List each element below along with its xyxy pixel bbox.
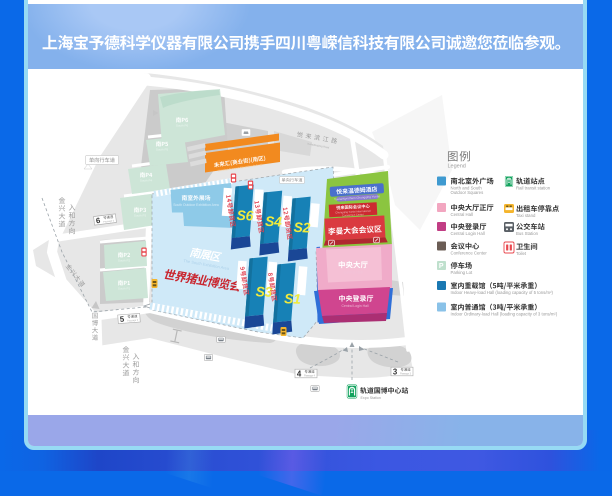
svg-text:Toilet: Toilet	[516, 251, 527, 256]
svg-text:Expo Station: Expo Station	[361, 396, 381, 400]
svg-text:S2: S2	[293, 220, 310, 236]
svg-text:South P2: South P2	[118, 259, 131, 263]
svg-text:Parking Lot: Parking Lot	[451, 270, 474, 275]
svg-text:Central Login Hall: Central Login Hall	[451, 231, 485, 236]
svg-text:Taxi stand: Taxi stand	[516, 213, 536, 218]
svg-text:Outdoor Squares: Outdoor Squares	[451, 190, 484, 195]
svg-text:Indoor Ordinary-load Hall (loa: Indoor Ordinary-load Hall (loading capac…	[451, 311, 558, 316]
svg-text:Conference Center: Conference Center	[451, 250, 488, 255]
svg-text:South Outdoor Exhibition Area: South Outdoor Exhibition Area	[173, 203, 219, 207]
svg-text:Legend: Legend	[448, 164, 466, 170]
svg-text:4: 4	[297, 369, 302, 378]
svg-text:P: P	[439, 263, 444, 270]
svg-text:South P6: South P6	[176, 124, 189, 128]
svg-text:South P1: South P1	[118, 287, 131, 291]
svg-text:S4: S4	[265, 214, 282, 230]
svg-text:3: 3	[393, 367, 398, 376]
svg-text:Central Hall: Central Hall	[451, 212, 473, 217]
svg-text:Bus Station: Bus Station	[516, 231, 539, 236]
svg-text:Passage 4: Passage 4	[304, 375, 316, 377]
svg-text:Rail transit station: Rail transit station	[516, 185, 551, 190]
svg-text:Central Login Hall: Central Login Hall	[342, 304, 369, 308]
svg-text:South P3: South P3	[134, 214, 147, 218]
svg-text:South P5: South P5	[156, 148, 169, 152]
svg-text:Passage 3: Passage 3	[400, 373, 412, 375]
svg-text:South P4: South P4	[140, 179, 153, 183]
svg-text:S1: S1	[284, 291, 301, 307]
svg-text:S6: S6	[236, 208, 253, 224]
svg-text:Central Hall: Central Hall	[344, 271, 363, 275]
svg-text:Indoor Heavy-load Hall (loadin: Indoor Heavy-load Hall (loading capacity…	[451, 290, 554, 295]
